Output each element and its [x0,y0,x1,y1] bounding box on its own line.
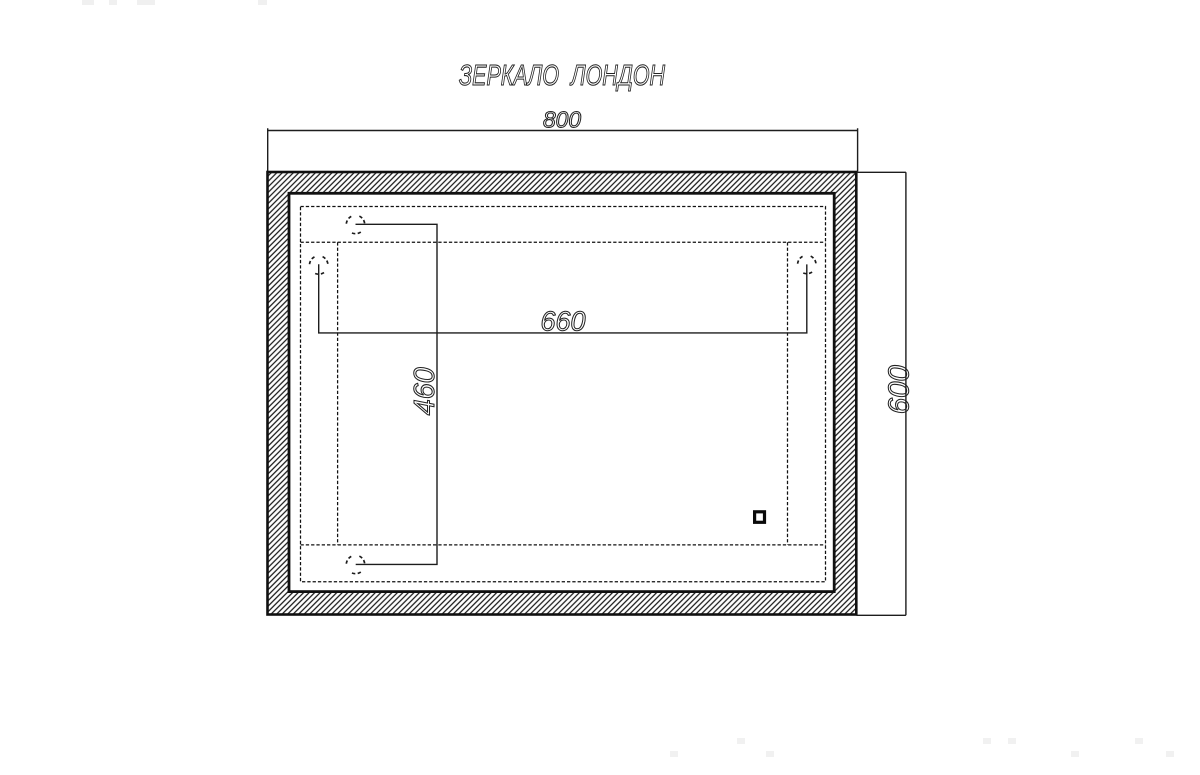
svg-text:460: 460 [409,367,441,415]
svg-text:ЗЕРКАЛО ЛОНДОН: ЗЕРКАЛО ЛОНДОН [459,60,665,92]
svg-text:600: 600 [884,365,916,414]
svg-text:660: 660 [541,306,586,337]
svg-text:800: 800 [543,107,581,133]
